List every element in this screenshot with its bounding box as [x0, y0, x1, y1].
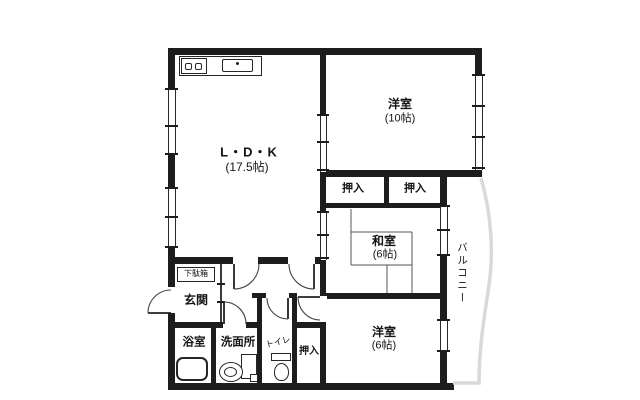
- ldk-size: (17.5帖): [225, 161, 268, 173]
- bedroom6-door-opening: [319, 296, 327, 322]
- wall-div-toilet-closet: [292, 293, 297, 390]
- window-tick: [472, 136, 485, 138]
- bathroom-label: 浴室: [183, 337, 206, 349]
- window-tick: [165, 187, 178, 189]
- door-swing-icon: [267, 298, 288, 319]
- window-tick: [317, 169, 329, 171]
- toilet-tank-icon: [271, 353, 291, 361]
- window-icon: [475, 75, 483, 170]
- window-tick: [165, 125, 178, 127]
- stove-burner-icon: [185, 63, 192, 70]
- balcony-label: バルコニー: [455, 242, 470, 305]
- window-tick: [317, 114, 329, 116]
- window-tick: [317, 211, 329, 213]
- door-swing-icon: [234, 264, 259, 289]
- window-icon: [168, 89, 176, 155]
- bedroom6-label: 洋室: [372, 326, 396, 338]
- toilet-door-opening: [266, 292, 289, 299]
- closet2-label: 押入: [404, 184, 426, 195]
- wall-closet-divider: [384, 172, 389, 205]
- entrance-door-opening: [167, 287, 176, 313]
- sliding-door-icon: [320, 115, 327, 172]
- door-swing-icon: [298, 297, 320, 320]
- window-tick: [472, 105, 485, 107]
- window-tick: [437, 350, 450, 352]
- window-tick: [437, 205, 450, 207]
- window-tick: [165, 153, 178, 155]
- bathtub-icon: [176, 357, 208, 381]
- window-tick: [317, 257, 329, 259]
- ldk-door-opening-a: [233, 256, 258, 265]
- window-tick: [437, 319, 450, 321]
- washitsu-label: 和室: [372, 235, 396, 247]
- window-icon: [440, 320, 448, 352]
- wall-div-bath-wash: [211, 322, 216, 390]
- step-tick: [217, 301, 225, 303]
- bedroom6-size: (6帖): [372, 341, 396, 352]
- floorplan-image: L・D・K (17.5帖) 洋室 (10帖) 押入 押入 和室 (6帖) 洋室 …: [0, 0, 640, 400]
- step-tick: [217, 283, 225, 285]
- entrance-label: 玄関: [184, 294, 208, 306]
- shoe-cabinet-label: 下駄箱: [184, 270, 208, 278]
- washitsu-size: (6帖): [373, 250, 397, 261]
- wall-washitsu-south: [320, 293, 446, 299]
- window-tick: [317, 141, 329, 143]
- washbasin-inner: [224, 367, 237, 377]
- window-tick: [437, 254, 450, 256]
- bedroom10-label: 洋室: [388, 98, 412, 110]
- window-tick: [472, 167, 485, 169]
- closet1-label: 押入: [342, 184, 364, 195]
- wall-closet3-top: [292, 322, 326, 328]
- bedroom10-size: (10帖): [385, 114, 416, 125]
- fusuma-door-icon: [320, 212, 327, 260]
- window-tick: [317, 234, 329, 236]
- washbasin-counter: [250, 374, 258, 382]
- window-icon: [440, 206, 448, 256]
- entrance-step-line: [220, 264, 222, 322]
- toilet-label: トイレ: [265, 335, 292, 349]
- sink-icon: [222, 59, 253, 72]
- toilet-icon: [274, 363, 289, 381]
- window-tick: [165, 216, 178, 218]
- window-tick: [165, 246, 178, 248]
- window-tick: [165, 88, 178, 90]
- faucet-icon: [236, 62, 239, 65]
- wall-closet-top: [320, 170, 446, 177]
- window-tick: [437, 229, 450, 231]
- washroom-door-opening: [223, 321, 246, 329]
- door-swing-icon: [289, 264, 314, 289]
- wall-closet-bottom: [320, 203, 446, 208]
- window-tick: [472, 74, 485, 76]
- ldk-label: L・D・K: [220, 146, 278, 159]
- ldk-door-opening-b: [288, 256, 315, 265]
- washroom-label: 洗面所: [221, 337, 256, 349]
- window-icon: [168, 188, 176, 248]
- stove-burner-icon: [195, 63, 202, 70]
- closet3-label: 押入: [299, 347, 319, 357]
